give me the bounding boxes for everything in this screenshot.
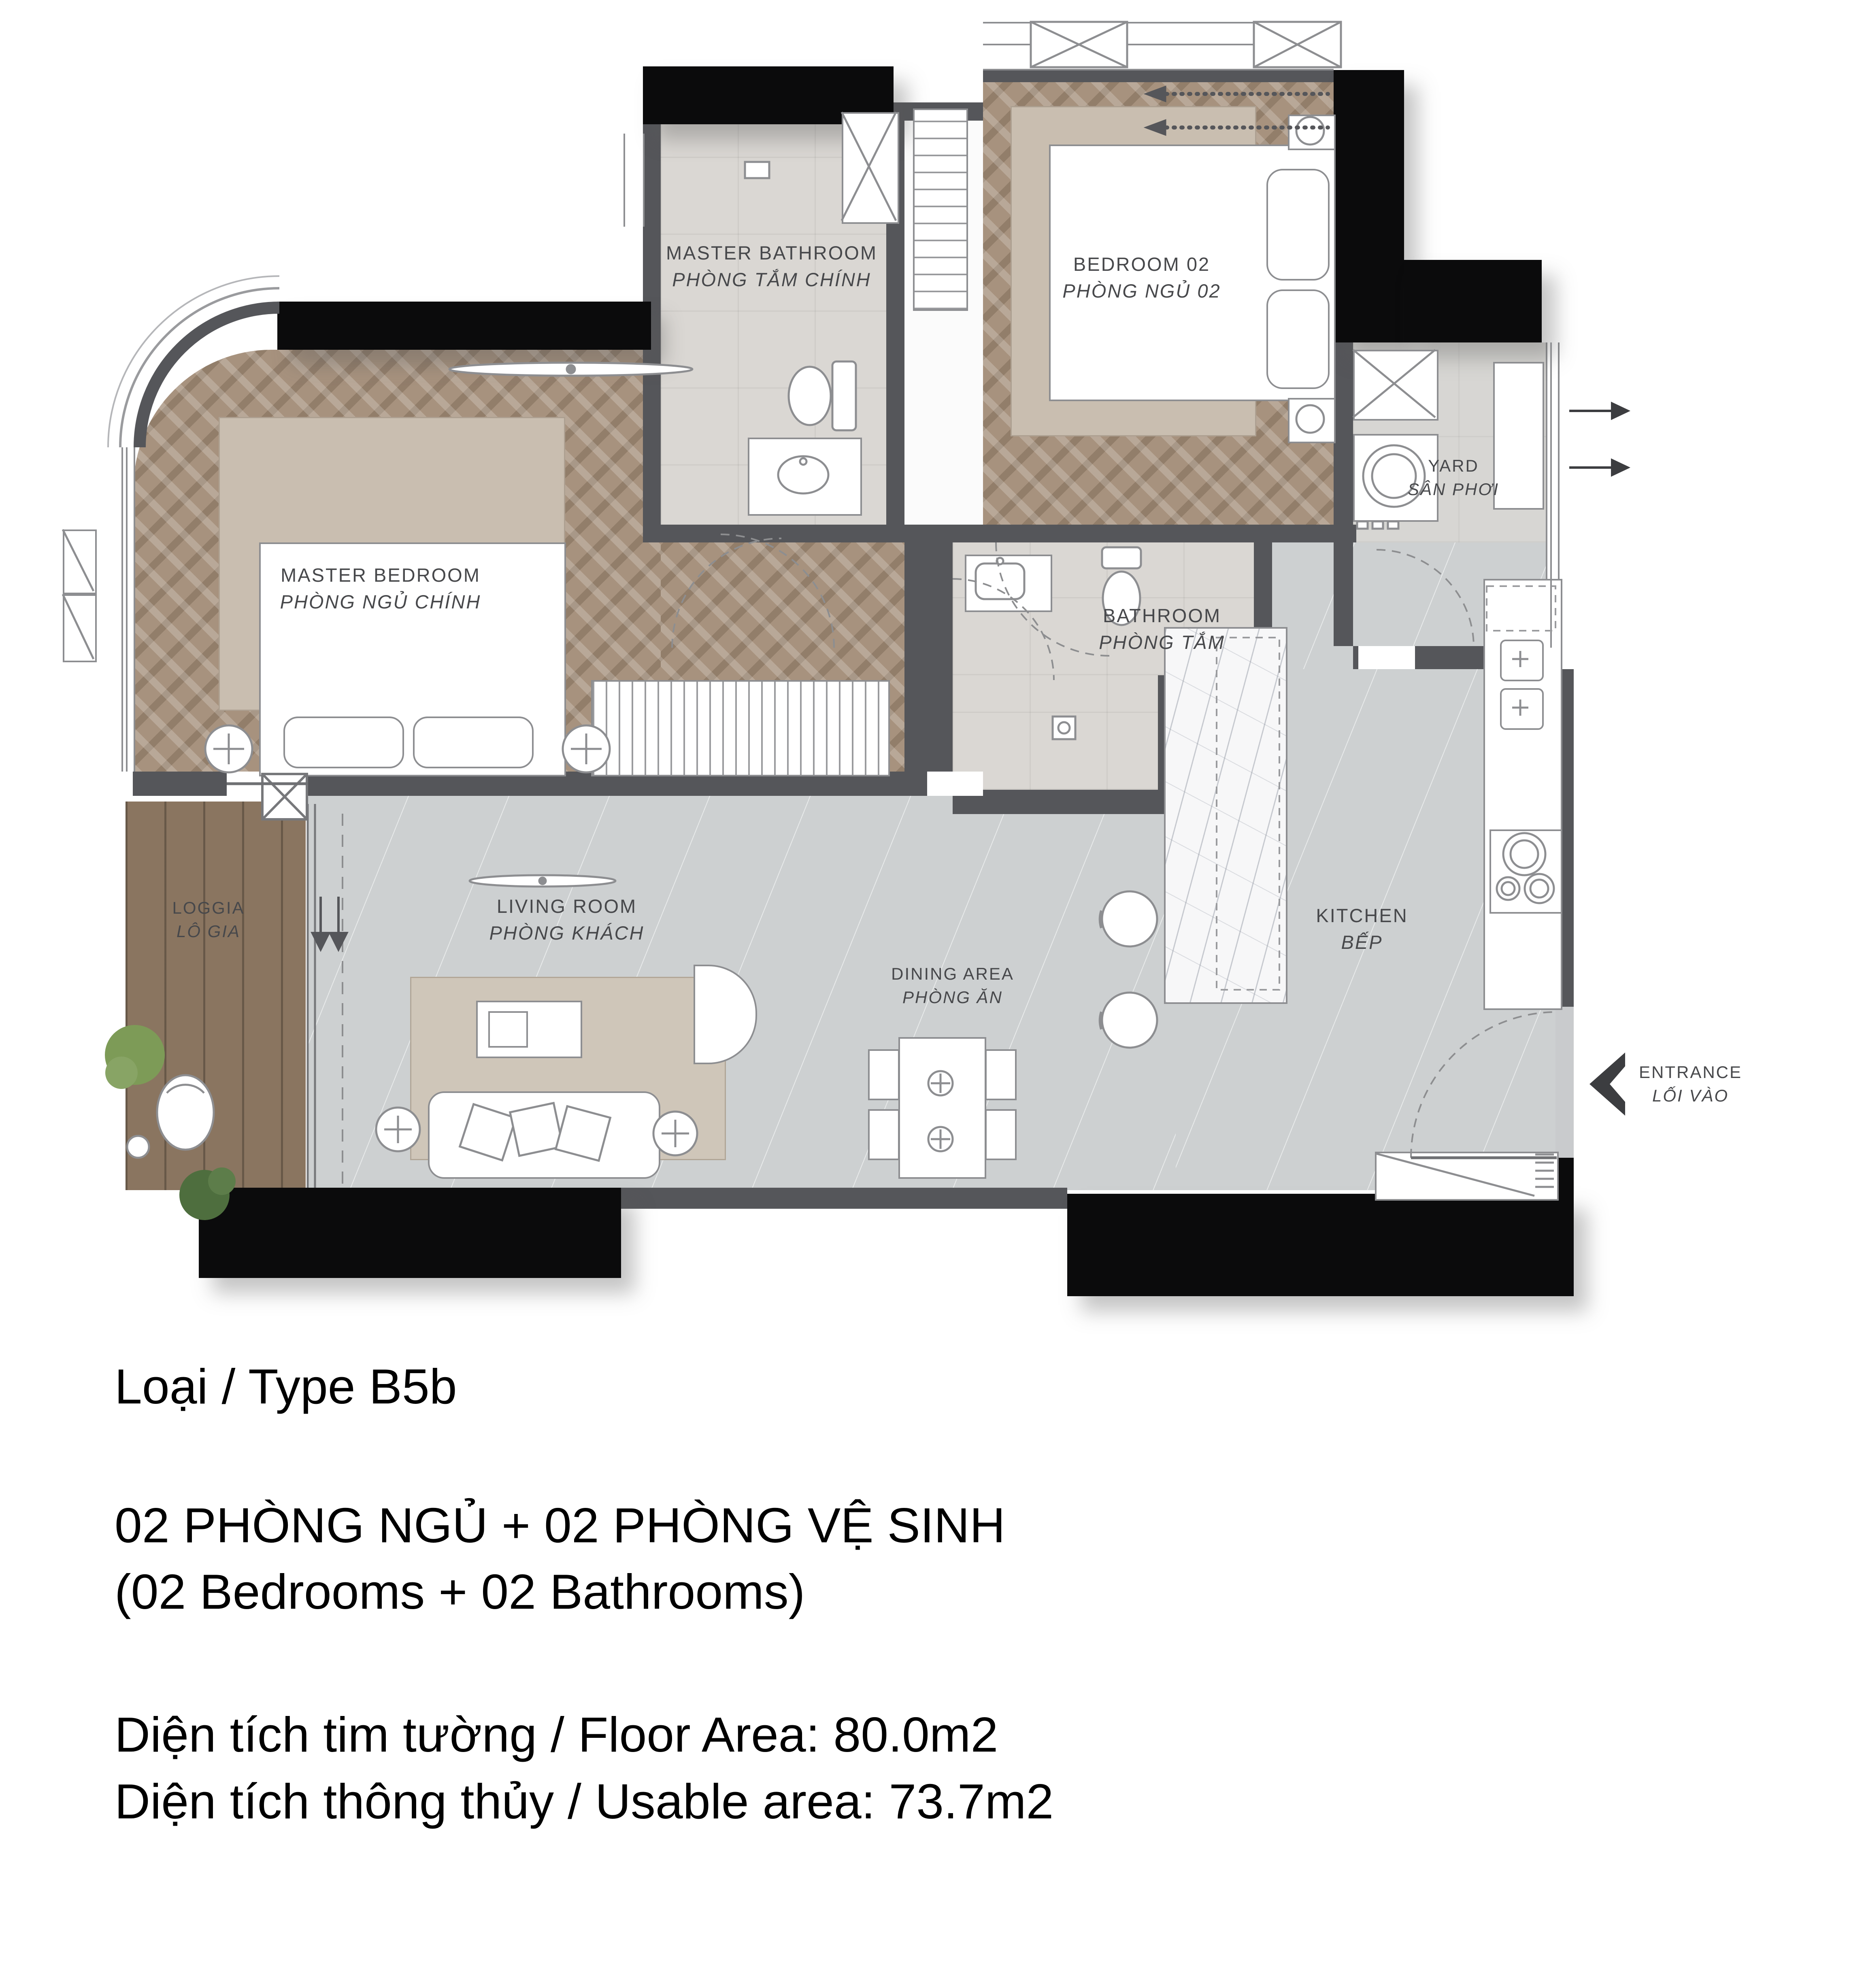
label-dining-area: DINING AREA PHÒNG ĂN [891,962,1014,1009]
shoe-cabinet-lines [1377,1154,1554,1196]
basin-icon [976,563,1024,599]
entrance-en: ENTRANCE [1639,1063,1742,1082]
airflow-arrows-loggia [313,897,347,949]
label-bathroom: BATHROOM PHÒNG TẮM [1099,602,1225,656]
master-bedroom-vi: PHÒNG NGỦ CHÍNH [280,589,481,615]
master-bathroom-en: MASTER BATHROOM [666,242,877,264]
stool-icon [1102,891,1157,946]
living-room-en: LIVING ROOM [497,895,637,917]
loggia-vi: LÔ GIA [172,920,245,943]
config-line-vi: 02 PHÒNG NGỦ + 02 PHÒNG VỆ SINH [115,1497,1005,1554]
label-bedroom-02: BEDROOM 02 PHÒNG NGỦ 02 [1062,251,1221,304]
label-loggia: LOGGIA LÔ GIA [172,896,245,943]
label-yard: YARD SÂN PHƠI [1408,454,1499,501]
label-kitchen: KITCHEN BẾP [1316,902,1408,956]
toilet-master-icon [832,361,856,430]
bathroom-en: BATHROOM [1103,605,1221,626]
toilet-icon [1102,547,1141,568]
loggia-en: LOGGIA [172,898,245,917]
label-living-room: LIVING ROOM PHÒNG KHÁCH [489,893,645,946]
bedroom-02-en: BEDROOM 02 [1073,253,1210,275]
label-entrance: ENTRANCE LỐI VÀO [1639,1061,1742,1108]
bathroom-vi: PHÒNG TẮM [1099,629,1225,656]
usable-area-line: Diện tích thông thủy / Usable area: 73.7… [115,1773,1053,1830]
bedroom-02-vi: PHÒNG NGỦ 02 [1062,278,1221,304]
sofa-pillow [460,1104,516,1161]
dining-area-vi: PHÒNG ĂN [891,986,1014,1009]
kitchen-en: KITCHEN [1316,905,1408,926]
structural-column [262,774,307,819]
dining-area-en: DINING AREA [891,964,1014,983]
master-bathroom-vi: PHÒNG TẮM CHÍNH [666,266,877,293]
label-master-bathroom: MASTER BATHROOM PHÒNG TẮM CHÍNH [666,240,877,293]
floor-area-line: Diện tích tim tường / Floor Area: 80.0m2 [115,1706,998,1763]
entrance-vi: LỐI VÀO [1639,1084,1742,1108]
floor-plan-page: MASTER BATHROOM PHÒNG TẮM CHÍNH BEDROOM … [0,0,1864,1988]
yard-vi: SÂN PHƠI [1408,478,1499,501]
kitchen-vi: BẾP [1316,929,1408,956]
yard-en: YARD [1428,456,1479,475]
yard-arrows [1569,404,1628,475]
loggia-boundary [308,804,343,1188]
entrance-arrow-icon [1590,1052,1625,1116]
config-line-en: (02 Bedrooms + 02 Bathrooms) [115,1563,805,1620]
curved-corner-wall [108,276,279,447]
egg-chair-icon [157,1075,214,1150]
label-master-bedroom: MASTER BEDROOM PHÒNG NGỦ CHÍNH [280,562,481,615]
living-room-vi: PHÒNG KHÁCH [489,920,645,946]
master-bedroom-en: MASTER BEDROOM [281,564,481,586]
unit-type-title: Loại / Type B5b [115,1358,457,1415]
shaft-cross [63,112,1435,659]
